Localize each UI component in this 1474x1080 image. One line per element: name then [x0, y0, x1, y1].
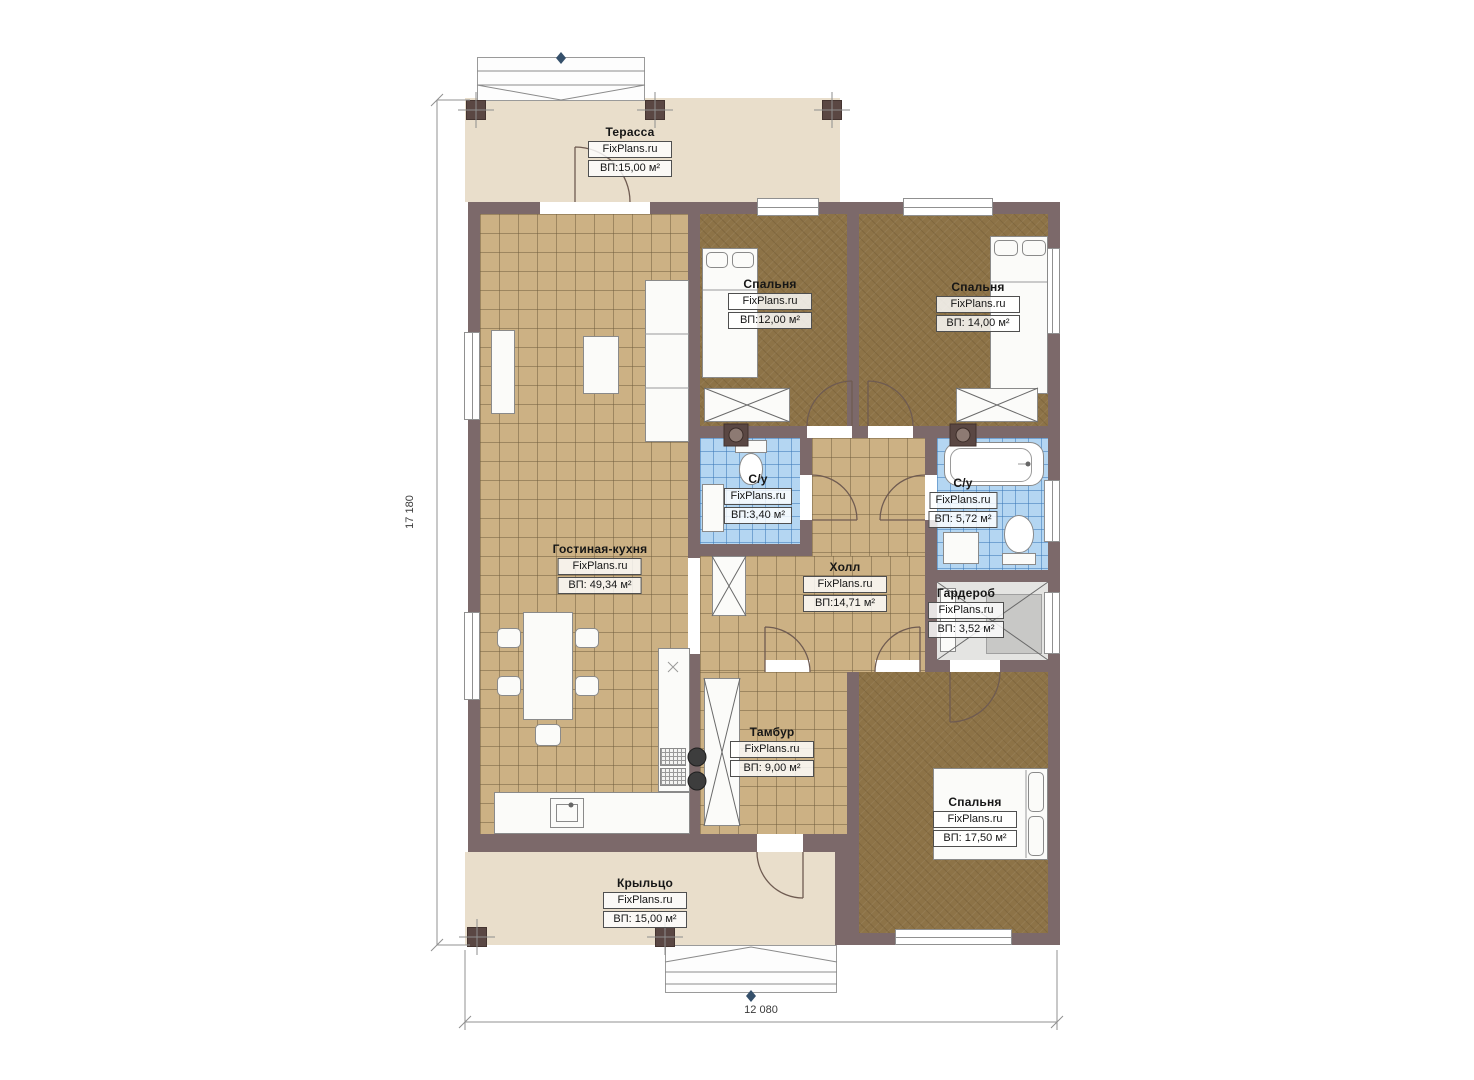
window — [1044, 480, 1060, 542]
room-area: ВП: 49,34 м² — [558, 577, 642, 594]
chair — [575, 628, 599, 648]
watermark: FixPlans.ru — [558, 558, 642, 575]
room-area: ВП:3,40 м² — [724, 507, 792, 524]
terrace-post — [822, 100, 842, 120]
watermark: FixPlans.ru — [603, 892, 687, 909]
room-label-bathroom-1: С/у FixPlans.ru ВП:3,40 м² — [724, 472, 792, 524]
bedroom-1-door-opening — [807, 426, 852, 438]
room-area: ВП:15,00 м² — [588, 160, 672, 177]
room-name: Спальня — [936, 280, 1020, 294]
porch-stairs — [665, 945, 837, 993]
pillow — [706, 252, 728, 268]
window — [464, 332, 480, 420]
sofa — [645, 280, 689, 442]
room-name: Терасса — [588, 125, 672, 139]
room-label-living-kitchen: Гостиная-кухня FixPlans.ru ВП: 49,34 м² — [553, 542, 648, 594]
watermark: FixPlans.ru — [588, 141, 672, 158]
window — [757, 198, 819, 216]
floor-plan: Терасса FixPlans.ru ВП:15,00 м² Спальня … — [0, 0, 1474, 1080]
pillow — [1028, 772, 1044, 812]
watermark: FixPlans.ru — [928, 602, 1004, 619]
room-label-terrace: Терасса FixPlans.ru ВП:15,00 м² — [588, 125, 672, 177]
cabinet — [491, 330, 515, 414]
window — [464, 612, 480, 700]
room-name: С/у — [724, 472, 792, 486]
kitchen-appliance — [660, 748, 686, 766]
room-area: ВП: 14,00 м² — [936, 315, 1020, 332]
terrace-post — [645, 100, 665, 120]
window — [895, 929, 1012, 945]
hall-door-opening — [875, 660, 920, 672]
room-area: ВП: 17,50 м² — [933, 830, 1017, 847]
toilet-tank — [735, 440, 767, 453]
room-label-bathroom-2: С/у FixPlans.ru ВП: 5,72 м² — [928, 476, 997, 528]
bedroom-2-door-opening — [868, 426, 913, 438]
bathroom-1-door-opening — [800, 475, 812, 520]
pillow — [1022, 240, 1046, 256]
room-label-porch: Крыльцо FixPlans.ru ВП: 15,00 м² — [603, 876, 687, 928]
terrace-door-opening — [540, 202, 650, 214]
room-name: Спальня — [933, 795, 1017, 809]
room-name: Тамбур — [730, 725, 814, 739]
watermark: FixPlans.ru — [728, 293, 812, 310]
room-label-bedroom-3: Спальня FixPlans.ru ВП: 17,50 м² — [933, 795, 1017, 847]
toilet-tank — [1002, 553, 1036, 565]
window — [1044, 592, 1060, 654]
porch-post — [467, 927, 487, 947]
porch-door-opening — [757, 834, 803, 852]
porch-post — [655, 927, 675, 947]
room-floor-hall-corridor — [812, 438, 925, 556]
room-name: С/у — [928, 476, 997, 490]
room-name: Холл — [803, 560, 887, 574]
closet — [956, 388, 1038, 422]
room-label-hall: Холл FixPlans.ru ВП:14,71 м² — [803, 560, 887, 612]
room-name: Гостиная-кухня — [553, 542, 648, 556]
dining-table — [523, 612, 573, 720]
room-area: ВП: 9,00 м² — [730, 760, 814, 777]
chair — [535, 724, 561, 746]
room-label-wardrobe: Гардероб FixPlans.ru ВП: 3,52 м² — [928, 586, 1004, 638]
dimension-width: 12 080 — [744, 1004, 778, 1016]
room-area: ВП:14,71 м² — [803, 595, 887, 612]
coffee-table — [583, 336, 619, 394]
room-label-bedroom-1: Спальня FixPlans.ru ВП:12,00 м² — [728, 277, 812, 329]
room-name: Спальня — [728, 277, 812, 291]
pillow — [732, 252, 754, 268]
wash-sink — [943, 532, 979, 564]
room-name: Крыльцо — [603, 876, 687, 890]
room-label-bedroom-2: Спальня FixPlans.ru ВП: 14,00 м² — [936, 280, 1020, 332]
watermark: FixPlans.ru — [730, 741, 814, 758]
room-name: Гардероб — [928, 586, 1004, 600]
kitchen-counter — [494, 792, 690, 834]
watermark: FixPlans.ru — [803, 576, 887, 593]
pillow — [994, 240, 1018, 256]
watermark: FixPlans.ru — [936, 296, 1020, 313]
watermark: FixPlans.ru — [929, 492, 997, 509]
window — [903, 198, 993, 216]
closet — [712, 556, 746, 616]
living-hall-opening — [688, 558, 700, 654]
kitchen-appliance — [660, 768, 686, 786]
wash-sink — [702, 484, 724, 532]
closet — [704, 388, 790, 422]
room-area: ВП:12,00 м² — [728, 312, 812, 329]
terrace-post — [466, 100, 486, 120]
chair — [497, 628, 521, 648]
room-label-vestibule: Тамбур FixPlans.ru ВП: 9,00 м² — [730, 725, 814, 777]
terrace-stairs — [477, 57, 645, 101]
pillow — [1028, 816, 1044, 856]
toilet-bowl — [1004, 515, 1034, 553]
bedroom-3-door-opening — [950, 660, 1000, 672]
chair — [575, 676, 599, 696]
dimension-height: 17 180 — [404, 495, 416, 529]
room-area: ВП: 5,72 м² — [928, 511, 997, 528]
room-area: ВП: 15,00 м² — [603, 911, 687, 928]
watermark: FixPlans.ru — [933, 811, 1017, 828]
room-area: ВП: 3,52 м² — [928, 621, 1004, 638]
kitchen-sink-basin — [556, 804, 578, 822]
chair — [497, 676, 521, 696]
watermark: FixPlans.ru — [724, 488, 792, 505]
vestibule-door-opening — [765, 660, 810, 672]
